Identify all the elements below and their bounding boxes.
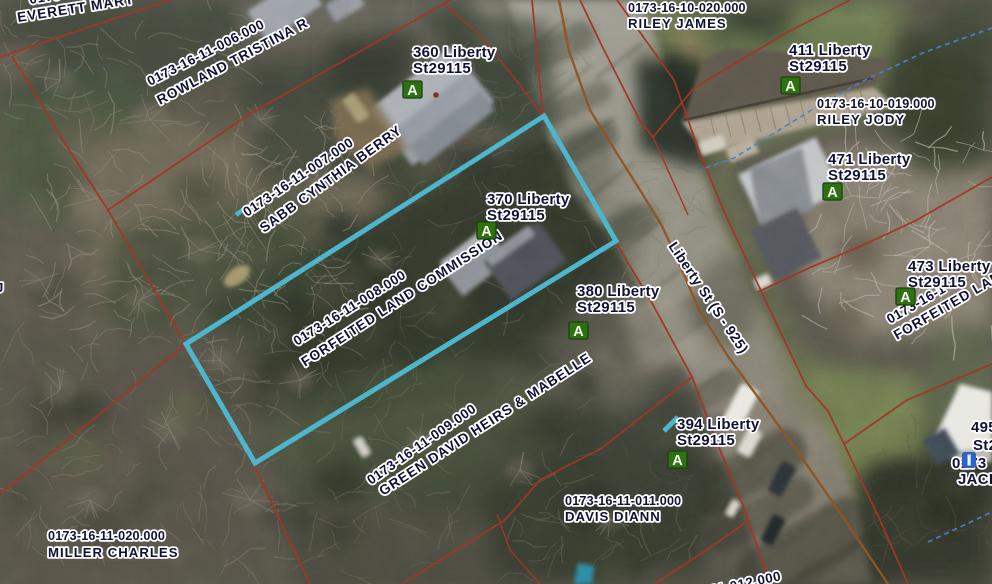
svg-text:A: A [573, 324, 584, 340]
svg-text:A: A [827, 185, 838, 201]
svg-text:DAVIS DIANN: DAVIS DIANN [565, 509, 661, 524]
svg-text:St2: St2 [973, 437, 992, 454]
svg-text:0173-16-11-011.000: 0173-16-11-011.000 [565, 494, 681, 508]
svg-text:A: A [900, 290, 911, 306]
svg-text:A: A [672, 453, 683, 469]
svg-text:A: A [785, 79, 796, 95]
svg-text:RILEY JODY: RILEY JODY [817, 112, 905, 127]
svg-text:St29115: St29115 [487, 207, 545, 224]
svg-text:471 Liberty: 471 Liberty [828, 151, 911, 168]
svg-text:St29115: St29115 [789, 58, 847, 75]
svg-text:380 Liberty: 380 Liberty [577, 283, 660, 300]
svg-text:St29115: St29115 [413, 60, 471, 77]
svg-text:J: J [0, 280, 4, 295]
svg-text:St29115: St29115 [828, 167, 886, 184]
svg-text:0173-16-10-020.000: 0173-16-10-020.000 [628, 1, 746, 15]
svg-text:411 Liberty: 411 Liberty [789, 42, 871, 59]
svg-text:St29115: St29115 [908, 274, 966, 291]
svg-text:RILEY JAMES: RILEY JAMES [628, 16, 727, 31]
svg-text:0173-16-11-020.000: 0173-16-11-020.000 [48, 529, 165, 543]
svg-text:473 Liberty: 473 Liberty [908, 258, 991, 275]
svg-text:394 Liberty: 394 Liberty [677, 416, 760, 433]
svg-text:St29115: St29115 [677, 432, 735, 449]
svg-text:St29115: St29115 [577, 299, 635, 316]
svg-text:A: A [407, 83, 418, 99]
svg-text:360 Liberty: 360 Liberty [413, 44, 496, 61]
svg-text:JACK: JACK [958, 471, 992, 488]
svg-text:A: A [481, 224, 492, 240]
svg-text:0173-16-10-019.000: 0173-16-10-019.000 [817, 97, 935, 111]
svg-text:370 Liberty: 370 Liberty [487, 191, 570, 208]
svg-text:MILLER CHARLES: MILLER CHARLES [48, 545, 179, 560]
svg-text:495: 495 [971, 419, 992, 436]
